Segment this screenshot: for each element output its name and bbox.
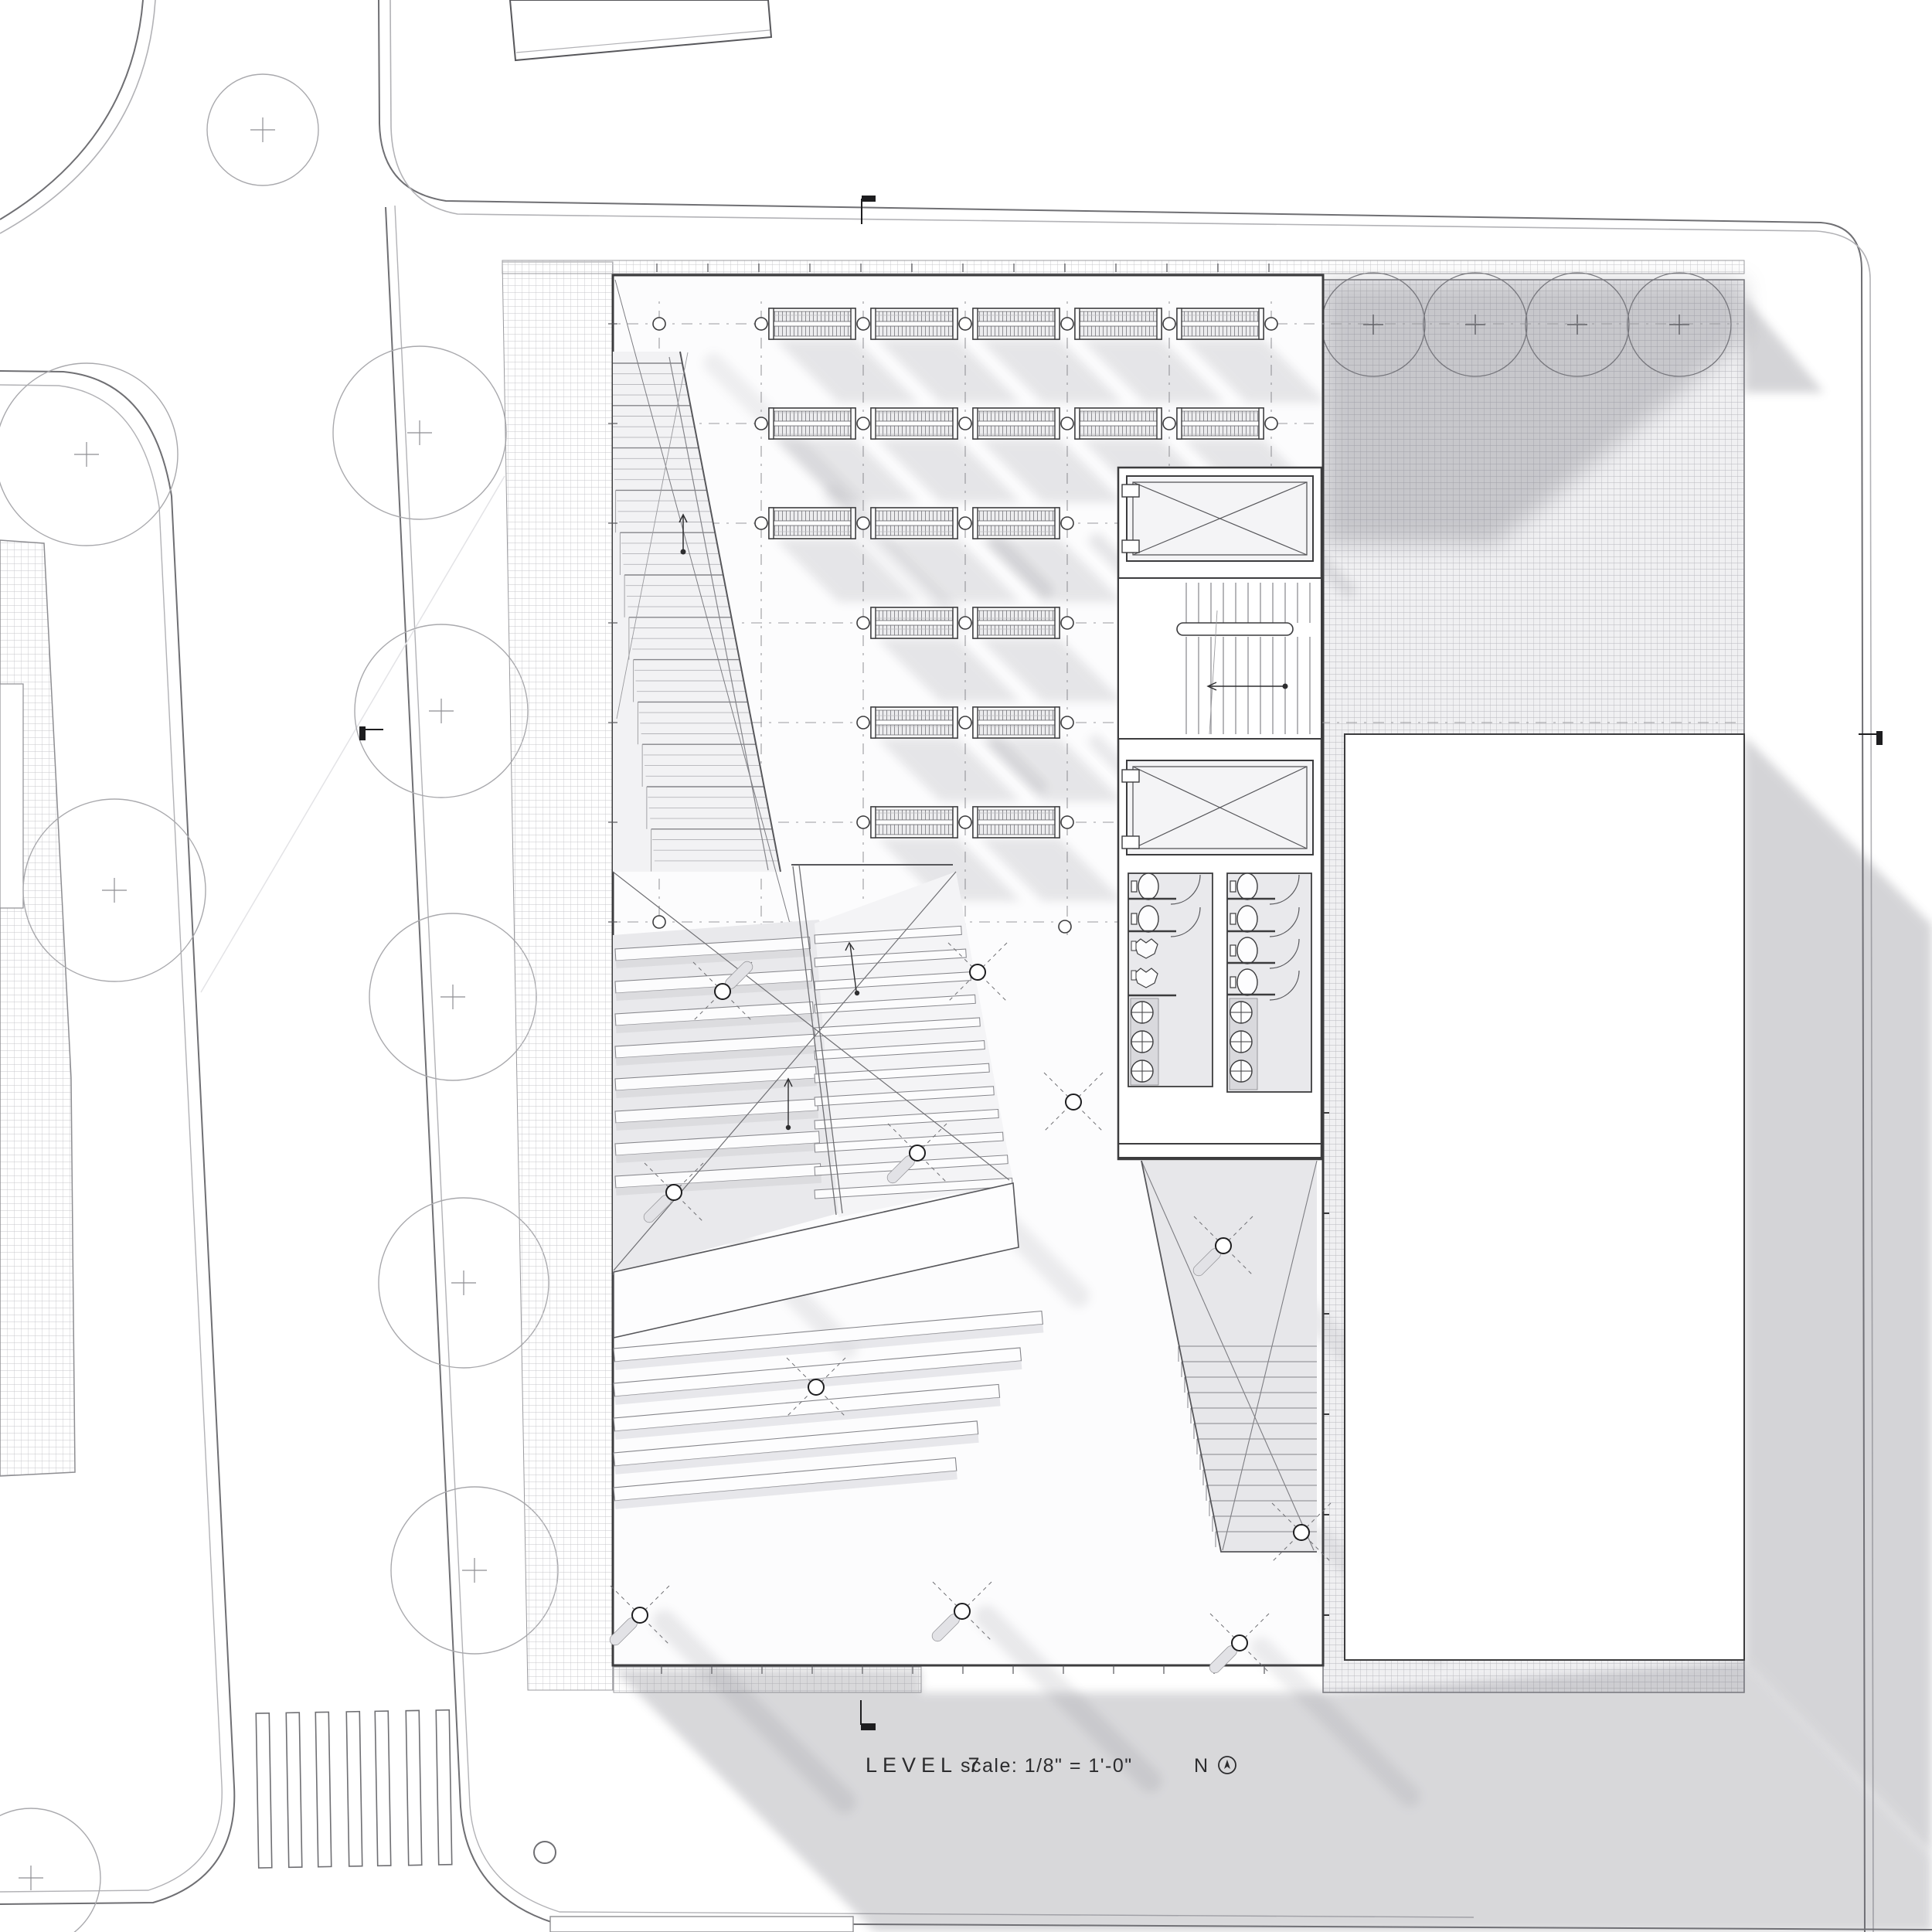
grid-bubble [959, 816, 971, 828]
sink-fixture [1230, 1031, 1252, 1053]
scale-label: scale: 1/8" = 1'-0" [961, 1755, 1133, 1777]
bookshelf-unit [1075, 408, 1162, 439]
crosswalk-stripes [256, 1710, 451, 1868]
bookshelf-unit [973, 408, 1060, 439]
curb-bench-strip [550, 1917, 853, 1932]
tree-circle [207, 74, 318, 185]
grid-bubble [755, 417, 767, 430]
sink-fixture [1131, 1031, 1153, 1053]
grid-bubble [653, 318, 665, 330]
north-label: N [1194, 1755, 1209, 1777]
crosswalk-stripe [346, 1712, 362, 1866]
bookshelf-unit [871, 707, 957, 738]
grid-bubble [959, 517, 971, 529]
upper-roof-volume [1345, 734, 1744, 1660]
crosswalk-stripe [256, 1713, 271, 1868]
grid-bubble [959, 417, 971, 430]
bookshelf-unit [871, 508, 957, 539]
plaza-north-strip [502, 260, 1744, 274]
crosswalk-stripe [436, 1710, 451, 1865]
plaza-west-strip [502, 262, 613, 1690]
grid-bubble [1061, 318, 1073, 330]
crosswalk-stripe [315, 1712, 331, 1866]
street-bollard-circle [534, 1842, 556, 1863]
bookshelf-unit [973, 508, 1060, 539]
bookshelf-unit [1177, 408, 1264, 439]
bookshelf-unit [973, 308, 1060, 339]
elevator-shaft-1 [1122, 476, 1313, 561]
grid-bubble [857, 318, 869, 330]
grid-bubble [857, 617, 869, 629]
grid-bubble [1061, 617, 1073, 629]
context-building-north [510, 0, 771, 60]
bookshelf-unit [871, 807, 957, 838]
curb-corner-northwest-inner [0, 0, 155, 233]
bookshelf-unit [769, 408, 855, 439]
sink-fixture [1131, 1060, 1153, 1082]
context-building-west-court [0, 684, 23, 908]
tree-circle [0, 363, 178, 546]
elevator-shaft-2 [1122, 760, 1313, 855]
grid-bubble [857, 417, 869, 430]
elevator-door-jamb [1122, 540, 1139, 553]
tree-center-cross-icon [429, 699, 454, 723]
elevator-door-jamb [1122, 485, 1139, 497]
tree-circle [333, 346, 506, 519]
tree-center-cross-icon [74, 442, 99, 467]
section-marker-left [359, 726, 383, 740]
tree-center-cross-icon [19, 1866, 43, 1890]
core-stair-shaft [1118, 578, 1321, 739]
elevator-door-jamb [1122, 836, 1139, 849]
grid-bubble [1061, 417, 1073, 430]
bookshelf-unit [1177, 308, 1264, 339]
bookshelf-unit [769, 308, 855, 339]
grid-bubble [1163, 318, 1175, 330]
sink-fixture [1230, 1002, 1252, 1023]
grid-bubble [1061, 716, 1073, 729]
grid-bubble [755, 318, 767, 330]
elevator-door-jamb [1122, 770, 1139, 782]
context-building-west [0, 540, 75, 1476]
bookshelf-unit [871, 308, 957, 339]
grid-bubble [1265, 318, 1277, 330]
tree-circle [0, 1808, 100, 1932]
crosswalk-stripe [286, 1713, 301, 1867]
crosswalk-stripe [375, 1711, 390, 1866]
grid-bubble [653, 916, 665, 928]
street-faint-diagonal [201, 476, 505, 992]
bookshelf-unit [769, 508, 855, 539]
building-shadow-south [614, 1662, 1932, 1932]
grid-bubble [1061, 816, 1073, 828]
bookshelf-unit [973, 807, 1060, 838]
tree-center-cross-icon [451, 1270, 476, 1295]
crosswalk-stripe [406, 1710, 421, 1865]
tree-center-cross-icon [462, 1558, 487, 1583]
bookshelf-unit [871, 607, 957, 638]
grid-bubble [755, 517, 767, 529]
bookshelf-unit [1075, 308, 1162, 339]
tree-center-cross-icon [102, 878, 127, 903]
grid-bubble [857, 517, 869, 529]
grid-bubble [1059, 920, 1071, 933]
sink-fixture [1131, 1002, 1153, 1023]
street-tree-circles [0, 74, 558, 1932]
grid-bubble [1265, 417, 1277, 430]
bookshelf-unit [973, 607, 1060, 638]
grid-bubble [1061, 517, 1073, 529]
grid-bubble [959, 318, 971, 330]
grid-bubble [1163, 417, 1175, 430]
terrace-shadow-curb-wedge [1744, 296, 1824, 393]
grid-bubble [857, 716, 869, 729]
tree-circle [355, 624, 528, 798]
tree-center-cross-icon [407, 420, 432, 445]
grid-bubble [857, 816, 869, 828]
tree-center-cross-icon [250, 117, 275, 142]
grid-bubble [959, 716, 971, 729]
floor-plan-sheet: LEVEL 7 scale: 1/8" = 1'-0" N [0, 0, 1932, 1932]
floor-plan-drawing: LEVEL 7 scale: 1/8" = 1'-0" N [0, 0, 1932, 1932]
grid-bubble [959, 617, 971, 629]
tree-circle [369, 913, 536, 1080]
bookshelf-unit [871, 408, 957, 439]
tree-center-cross-icon [440, 985, 465, 1009]
bookshelf-unit [973, 707, 1060, 738]
curb-corner-northwest-outer [0, 0, 143, 219]
service-core [1118, 468, 1321, 1159]
sink-fixture [1230, 1060, 1252, 1082]
building-shadow-east [1744, 736, 1932, 1855]
